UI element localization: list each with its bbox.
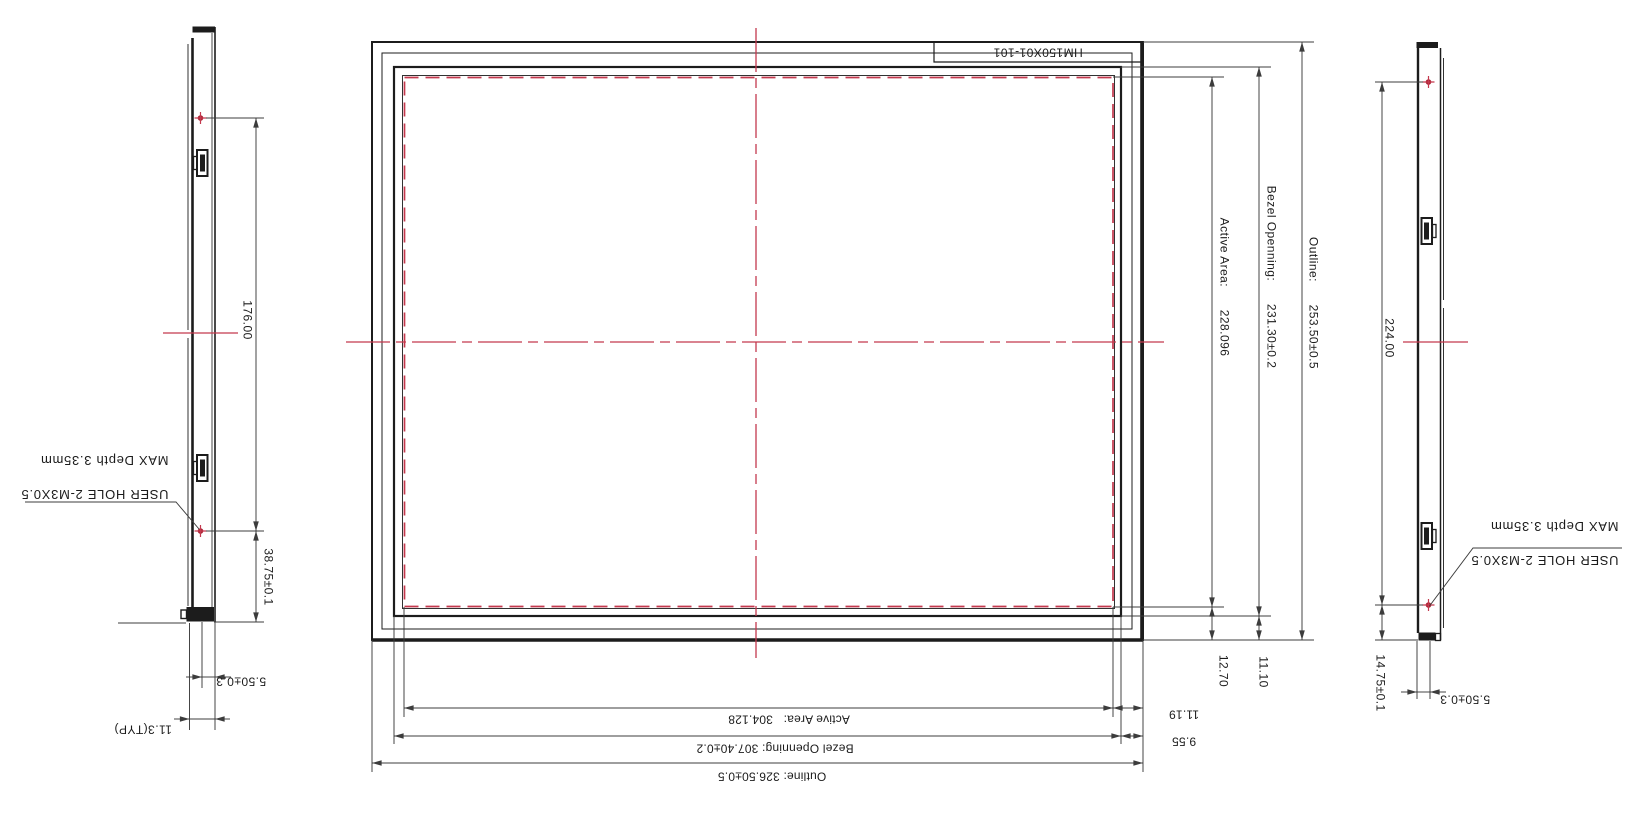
right-view-mount-hole-top (1423, 76, 1435, 88)
left-view-top-cap (193, 27, 216, 33)
left-view-connector-2 (194, 455, 208, 481)
dim-front-active-to-edge-horizontal: 11.19 (1169, 707, 1199, 722)
right-side-view-dimensions (1375, 82, 1622, 699)
dim-front-outline-height: Outline: 253.50±0.5 (1306, 237, 1321, 369)
note-right-user-hole-line2: MAX Depth 3.35mm (1490, 519, 1618, 534)
left-view-base-hook (181, 610, 187, 619)
dim-right-hole-to-bottom: 14.75±0.1 (1373, 654, 1388, 711)
right-view-connector-1 (1422, 218, 1437, 244)
note-left-user-hole-line1: USER HOLE 2-M3X0.5 (21, 487, 169, 502)
note-left-user-hole-line2: MAX Depth 3.35mm (40, 453, 168, 468)
dim-right-front-thickness: 5.50±0.3 (1440, 692, 1490, 707)
note-right-user-hole: USER HOLE 2-M3X0.5 MAX Depth 3.35mm (1471, 517, 1626, 585)
right-view-base (1419, 633, 1436, 641)
dim-right-hole-pitch: 224.00 (1382, 318, 1397, 357)
dim-left-hole-pitch: 176.00 (240, 300, 255, 339)
right-view-connector-2 (1422, 523, 1437, 549)
left-view-connector-1 (194, 150, 208, 176)
dim-left-front-thickness: 5.50±0.3 (216, 674, 266, 689)
left-side-view-dimensions (25, 118, 264, 730)
dim-front-bezel-to-edge-vertical: 11.10 (1256, 656, 1271, 687)
left-side-view (118, 27, 238, 624)
right-view-mount-hole-bottom (1423, 599, 1435, 611)
part-number-label: HM150X01-101 (993, 45, 1082, 60)
front-view-panel (346, 28, 1164, 658)
note-left-user-hole: USER HOLE 2-M3X0.5 MAX Depth 3.35mm (21, 451, 177, 519)
dim-front-active-to-edge-vertical: 12.70 (1216, 655, 1231, 687)
dim-front-bezel-to-edge-horizontal: 9.55 (1172, 734, 1196, 749)
right-view-top-cap (1417, 42, 1439, 48)
dim-left-total-thickness: 11.3(TYP) (114, 722, 172, 737)
dim-front-outline-width: Outline: 326.50±0.5 (718, 769, 826, 784)
dim-front-active-area-height: Active Area: 228.096 (1217, 218, 1232, 357)
mechanical-drawing-sheet: HM150X01-101 Active Area: 228.096 Bezel … (0, 0, 1626, 822)
dim-front-bezel-opening-height: Bezel Openning: 231.30±0.2 (1264, 186, 1279, 369)
front-view-dimensions (372, 42, 1314, 772)
dim-front-bezel-opening-width: Bezel Openning: 307.40±0.2 (696, 741, 853, 756)
left-view-base (187, 607, 215, 622)
left-view-mount-hole-bottom (195, 525, 207, 537)
dim-front-active-area-width: Active Area: 304.128 (728, 712, 850, 727)
right-side-view (1403, 42, 1468, 641)
note-right-user-hole-line1: USER HOLE 2-M3X0.5 (1471, 553, 1619, 568)
left-view-mount-hole-top (195, 112, 207, 124)
dim-left-hole-to-bottom: 38.75±0.1 (261, 548, 276, 605)
